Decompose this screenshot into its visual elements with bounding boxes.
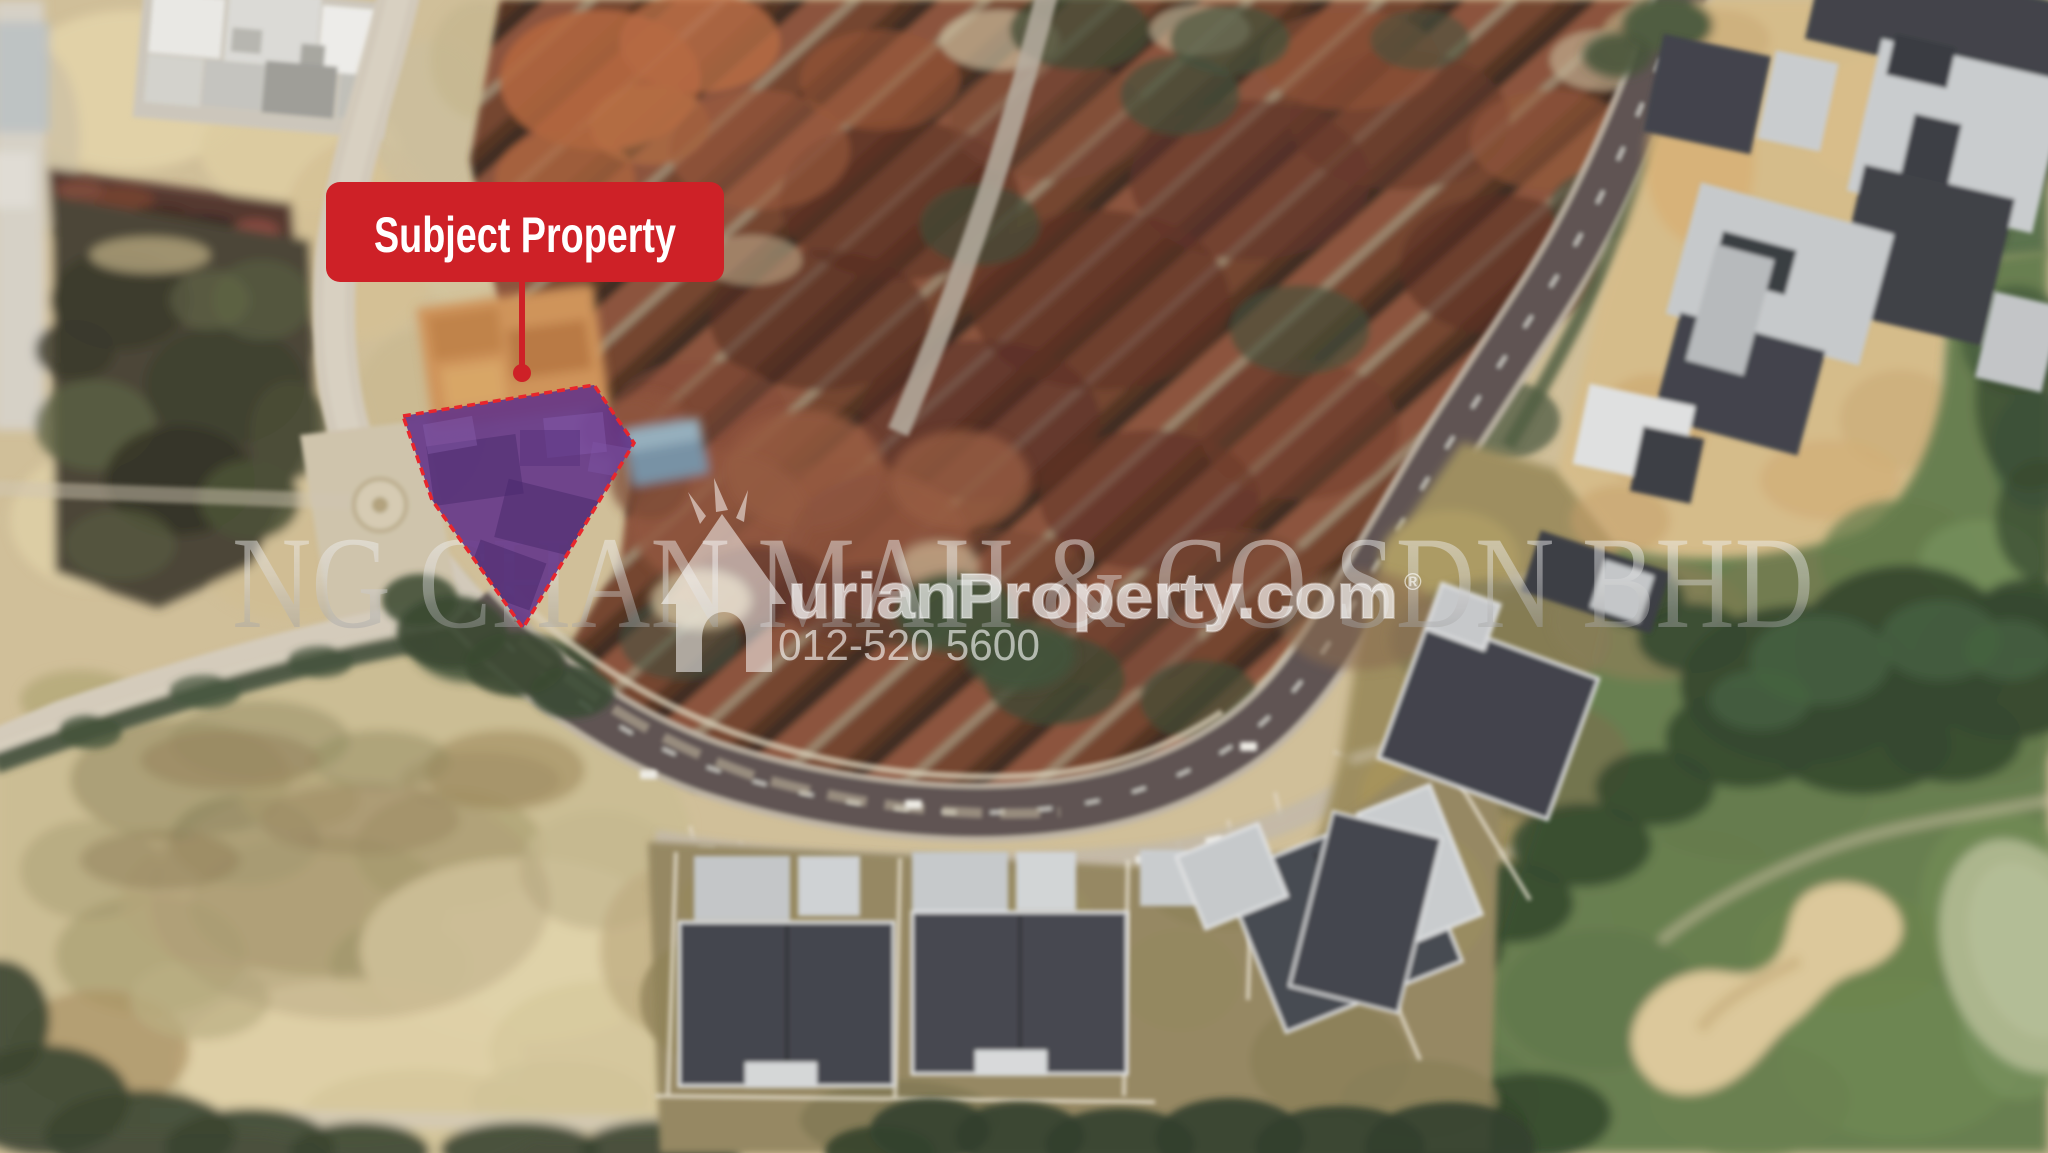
svg-text:®: ® xyxy=(1404,569,1422,596)
svg-text:012-520 5600: 012-520 5600 xyxy=(778,621,1040,670)
svg-text:Subject Property: Subject Property xyxy=(374,207,676,263)
